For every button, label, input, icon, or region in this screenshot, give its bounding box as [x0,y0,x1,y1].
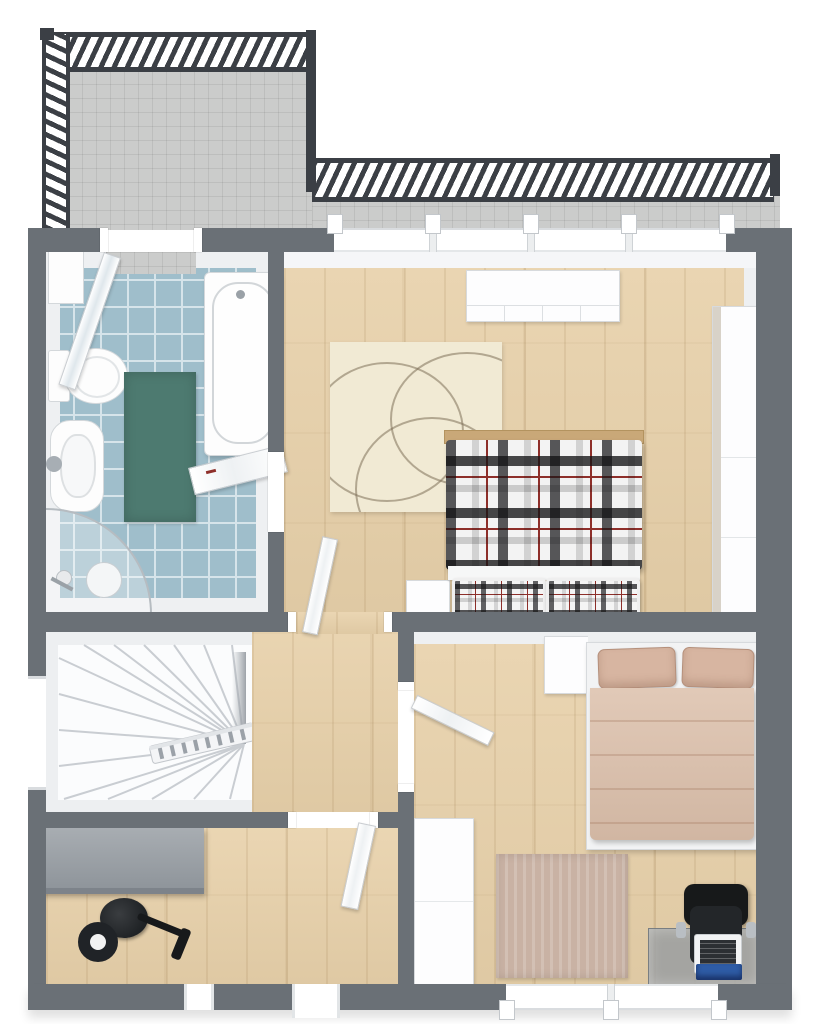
dresser [466,270,620,322]
balcony-railing-mid [312,158,774,202]
winder-staircase [46,632,252,812]
bed-tan-pillow-left [597,647,676,690]
storage-door-jamb [288,812,296,828]
hallway-floor [252,612,398,812]
gray-sideboard [40,828,204,894]
wall-mid-seg-right [392,612,756,632]
bathtub-faucet [236,290,245,299]
wall-hall-bedroomright-lower [398,786,414,984]
bedroom-top-door-jamb [288,612,296,632]
window-post-cap [711,1000,727,1020]
balcony-door-jamb [100,228,108,252]
balcony-door-threshold [106,252,196,274]
window-post-cap [523,214,539,234]
window-post-cap [719,214,735,234]
balcony-railing-top [46,32,314,72]
chair-armrest-left [676,922,686,938]
equipment-ring [78,922,118,962]
chair-armrest-right [746,922,756,938]
bed-tan-pillow-right [681,647,754,689]
shower-accessory-holder [86,562,122,598]
window-post-cap [327,214,343,234]
bedroom-right-door-jamb [398,682,414,690]
bath-rug [124,372,196,522]
balcony-railing-left [42,34,70,230]
dresser-divider [542,305,543,321]
bathroom-door-opening [268,452,284,532]
wardrobe-shelf-line [721,457,757,458]
bed-plaid-duvet [446,440,642,570]
wardrobe-door-line [415,901,473,902]
railing-step-post [306,30,316,192]
wall-storage-seg-right [378,812,398,828]
bedroom-top-door-jamb [384,612,392,632]
wall-hall-bedroomright-upper [398,612,414,688]
blue-notebook [696,964,742,980]
sink-faucet [46,456,62,472]
dresser-drawer-line [467,305,619,306]
floor-plan [0,0,830,1024]
window-post-cap [603,1000,619,1020]
laptop-keyboard [700,940,736,964]
bedroom-right-door-jamb [398,784,414,792]
exterior-door-bottom [292,984,340,1018]
wardrobe-side-panel [713,307,721,619]
window-post-cap [425,214,441,234]
wall-shelf [48,246,84,304]
balcony-door-jamb [194,228,202,252]
window-post-cap [621,214,637,234]
wardrobe-shelf-line [721,537,757,538]
wardrobe-bedroom-right [414,818,474,986]
dresser-divider [580,305,581,321]
dresser-divider [504,305,505,321]
railing-corner-post [40,28,54,40]
window-left-wall [28,676,46,790]
sink-basin [60,434,96,498]
nightstand [544,636,590,694]
wardrobe-top-bedroom [712,306,758,620]
beige-rug [496,854,628,978]
bedroom-top-sill-band [284,252,756,268]
window-post-cap [499,1000,515,1020]
wall-top-seg-mid [196,228,334,252]
bed-tan-duvet [590,688,754,840]
railing-end-post [770,154,780,196]
wall-mid-seg-left [28,612,296,632]
window-bottom-small [184,984,214,1010]
balcony-floor-main [54,56,312,230]
wall-right [756,228,792,1010]
bathtub-inner [212,282,274,444]
stairwell [46,632,252,812]
wall-bathroom-bedroom [268,252,284,612]
wall-storage-seg-left [28,812,288,828]
